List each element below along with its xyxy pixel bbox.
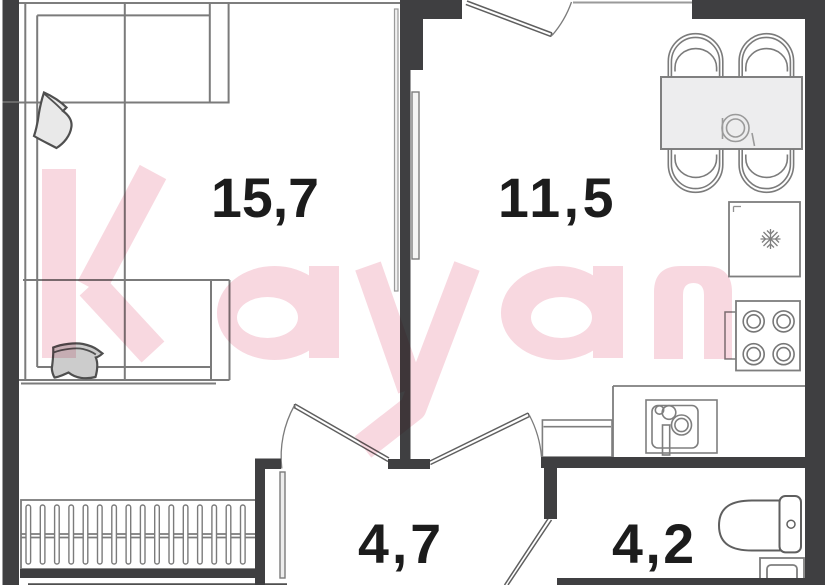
svg-text:15,7: 15,7: [211, 167, 319, 229]
svg-text:4,2: 4,2: [612, 513, 697, 575]
svg-text:11,5: 11,5: [498, 167, 617, 229]
svg-text:4,7: 4,7: [358, 513, 444, 575]
